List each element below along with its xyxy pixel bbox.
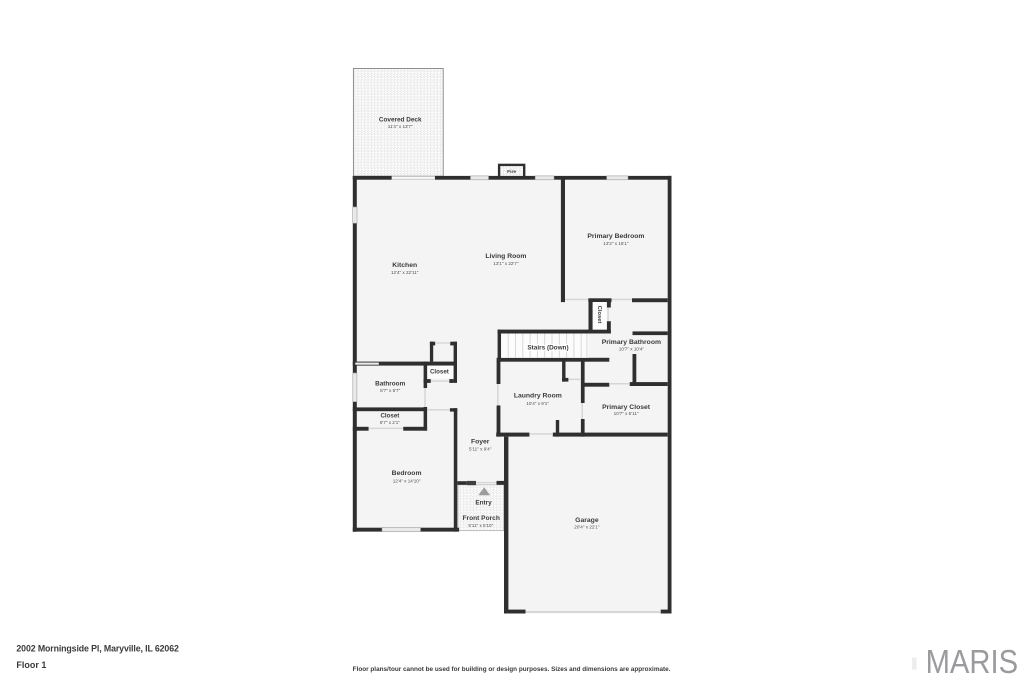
svg-text:Living Room: Living Room [485, 253, 526, 260]
svg-text:Floor 1: Floor 1 [16, 660, 46, 670]
svg-text:13'2" x 15'1": 13'2" x 15'1" [603, 241, 629, 246]
svg-text:12'4" x 22'11": 12'4" x 22'11" [391, 270, 419, 275]
svg-text:8'7" x 2'1": 8'7" x 2'1" [380, 420, 400, 425]
svg-text:Bedroom: Bedroom [392, 470, 422, 477]
svg-text:Floor plans/tour cannot be use: Floor plans/tour cannot be used for buil… [353, 666, 671, 673]
svg-text:MARIS: MARIS [926, 644, 1019, 681]
svg-text:Front Porch: Front Porch [463, 515, 500, 522]
svg-text:20'4" x 22'1": 20'4" x 22'1" [574, 525, 600, 530]
svg-text:10'7" x 5'11": 10'7" x 5'11" [614, 411, 639, 416]
svg-text:2002 Morningside Pl, Maryville: 2002 Morningside Pl, Maryville, IL 62062 [16, 643, 179, 653]
svg-text:10'7" x 10'4": 10'7" x 10'4" [619, 347, 645, 352]
svg-text:5'11" x 9'4": 5'11" x 9'4" [469, 446, 492, 451]
svg-text:10'4" x 9'1": 10'4" x 9'1" [526, 401, 549, 406]
svg-text:Stairs (Down): Stairs (Down) [527, 345, 568, 352]
svg-text:Fire: Fire [507, 169, 516, 175]
svg-text:Garage: Garage [575, 517, 599, 524]
svg-text:Closet: Closet [596, 306, 602, 324]
svg-text:8'7" x 5'7": 8'7" x 5'7" [380, 388, 400, 393]
svg-text:Entry: Entry [475, 500, 492, 507]
svg-text:Foyer: Foyer [471, 438, 490, 445]
svg-text:12'4" x 14'10": 12'4" x 14'10" [393, 478, 421, 483]
svg-text:Laundry Room: Laundry Room [514, 393, 562, 400]
svg-text:Primary Bathroom: Primary Bathroom [602, 339, 661, 346]
svg-text:Primary Bedroom: Primary Bedroom [587, 233, 644, 240]
svg-text:Primary Closet: Primary Closet [602, 404, 651, 411]
svg-text:Kitchen: Kitchen [392, 262, 417, 269]
svg-text:Closet: Closet [430, 369, 449, 376]
svg-text:11'4" x 13'7": 11'4" x 13'7" [388, 124, 413, 129]
svg-text:Closet: Closet [380, 413, 399, 420]
svg-text:13'1" x 22'7": 13'1" x 22'7" [493, 261, 519, 266]
svg-text:Bathroom: Bathroom [375, 380, 405, 387]
svg-text:Covered Deck: Covered Deck [379, 116, 422, 123]
svg-text:5'11" x 5'10": 5'11" x 5'10" [468, 523, 493, 528]
